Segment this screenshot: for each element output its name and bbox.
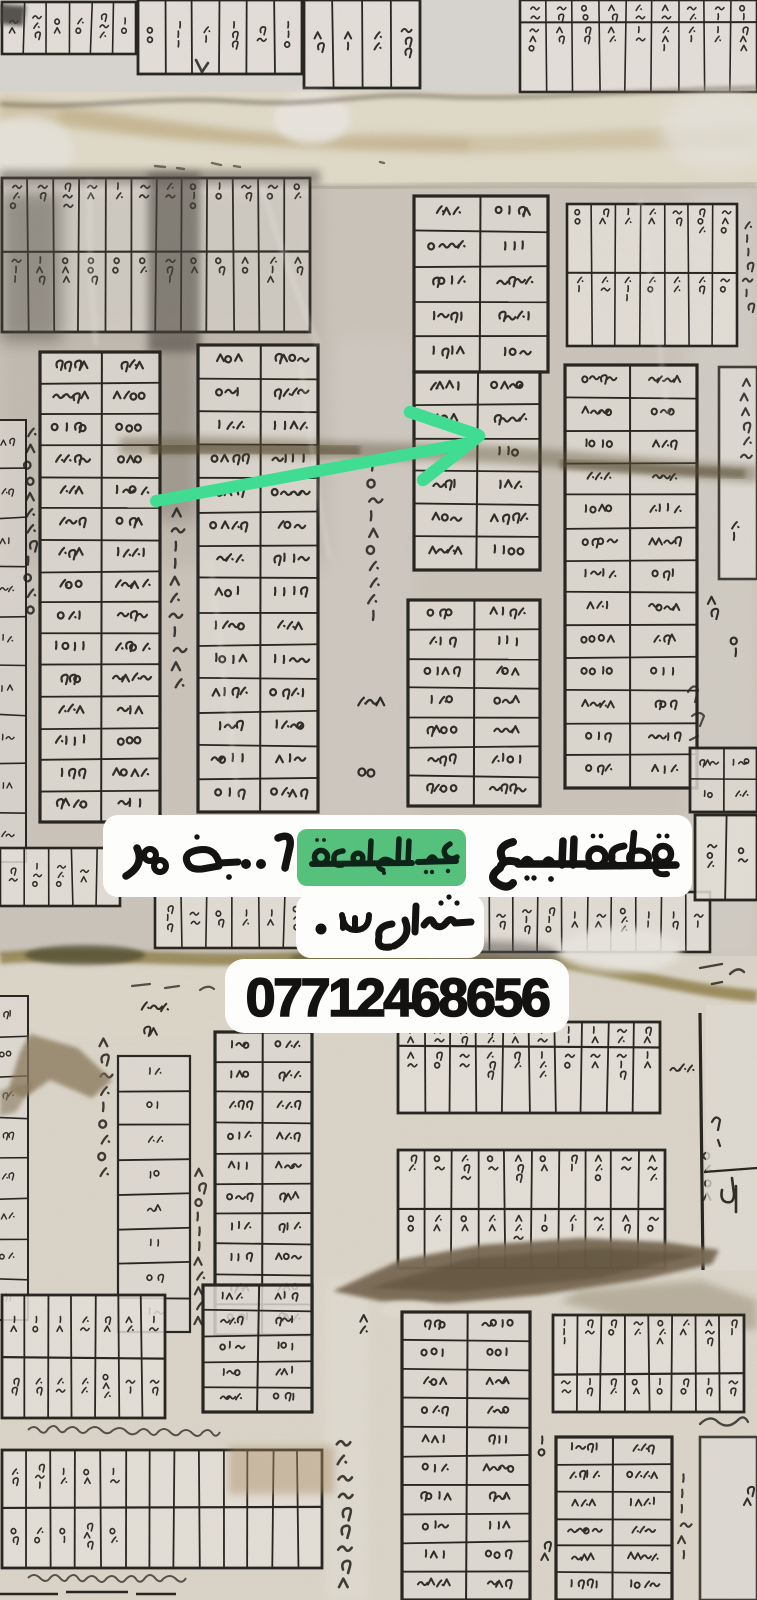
svg-text:07712468656: 07712468656 [246,968,550,1028]
